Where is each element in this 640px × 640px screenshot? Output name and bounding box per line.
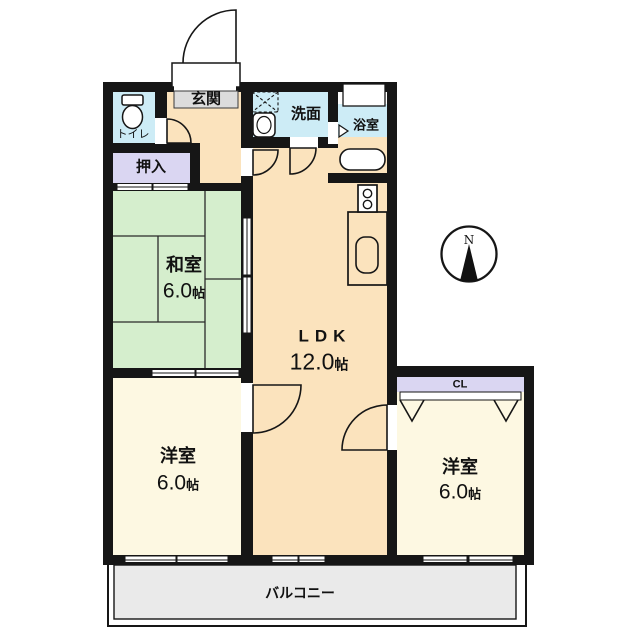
bathroom-label: 浴室 — [353, 119, 379, 132]
toilet-door-gap — [155, 118, 167, 144]
bath-door-gap — [328, 122, 338, 144]
ldk-size-value: 12.0 — [290, 349, 335, 375]
wall-washroom-bottom — [241, 137, 338, 148]
floorplan-canvas: 玄関 トイレ 押入 洗面 浴室 和室 6.0帖 LDK 12.0帖 洋室 6.0… — [0, 0, 640, 640]
entrance-label: 玄関 — [191, 92, 221, 107]
washitsu-left-room-sliding-door-icon — [152, 370, 239, 377]
japanese-room-size-value: 6.0 — [163, 280, 192, 303]
entrance-door-arc-icon — [183, 10, 236, 63]
wall-right-block-top — [387, 366, 534, 377]
japanese-room-size-unit: 帖 — [192, 286, 205, 301]
wall-left — [103, 82, 113, 565]
western-room-right-size-unit: 帖 — [468, 487, 481, 502]
western-room-left-size-unit: 帖 — [186, 478, 199, 493]
bathtub-icon — [340, 149, 385, 170]
western-room-right-size: 6.0帖 — [439, 482, 481, 503]
wall-toilet-bottom — [103, 143, 200, 153]
wall-bath-bottom — [328, 173, 397, 183]
ldk-label: LDK — [299, 328, 352, 345]
washitsu-ldk-sliding-door-icon — [243, 218, 251, 333]
japanese-room-size: 6.0帖 — [163, 281, 205, 302]
ldk-right-room-door-gap — [387, 405, 397, 450]
western-room-left-size-value: 6.0 — [157, 472, 186, 495]
oshiire-fusuma-icon — [117, 184, 188, 191]
stove-icon — [358, 185, 377, 212]
washbasin-icon — [253, 113, 275, 137]
balcony-label: バルコニー — [265, 586, 335, 600]
japanese-room-label: 和室 — [166, 256, 202, 274]
compass-north-label: N — [464, 234, 475, 246]
western-room-right-size-value: 6.0 — [439, 481, 468, 504]
ldk-left-room-door-gap — [241, 383, 253, 432]
bath-window-icon — [343, 84, 385, 106]
wall-right-main — [387, 82, 397, 565]
ldk-size-unit: 帖 — [334, 357, 348, 373]
western-room-right-label: 洋室 — [442, 458, 478, 476]
western-room-left-size: 6.0帖 — [157, 473, 199, 494]
cl-closet-label: CL — [453, 380, 468, 391]
wall-right-block-right — [524, 366, 534, 565]
western-room-left-label: 洋室 — [160, 447, 196, 465]
oshiire-label: 押入 — [136, 160, 166, 175]
cl-door-track-icon — [400, 392, 521, 400]
ldk-size: 12.0帖 — [290, 351, 349, 374]
washroom-door-gap — [290, 137, 318, 148]
toilet-label: トイレ — [117, 130, 150, 141]
toilet-icon — [122, 95, 143, 129]
washroom-label: 洗面 — [291, 107, 321, 122]
floorplan-drawing — [0, 0, 640, 640]
western-left-floor — [113, 378, 241, 555]
hall-ldk-door-gap — [241, 148, 253, 176]
